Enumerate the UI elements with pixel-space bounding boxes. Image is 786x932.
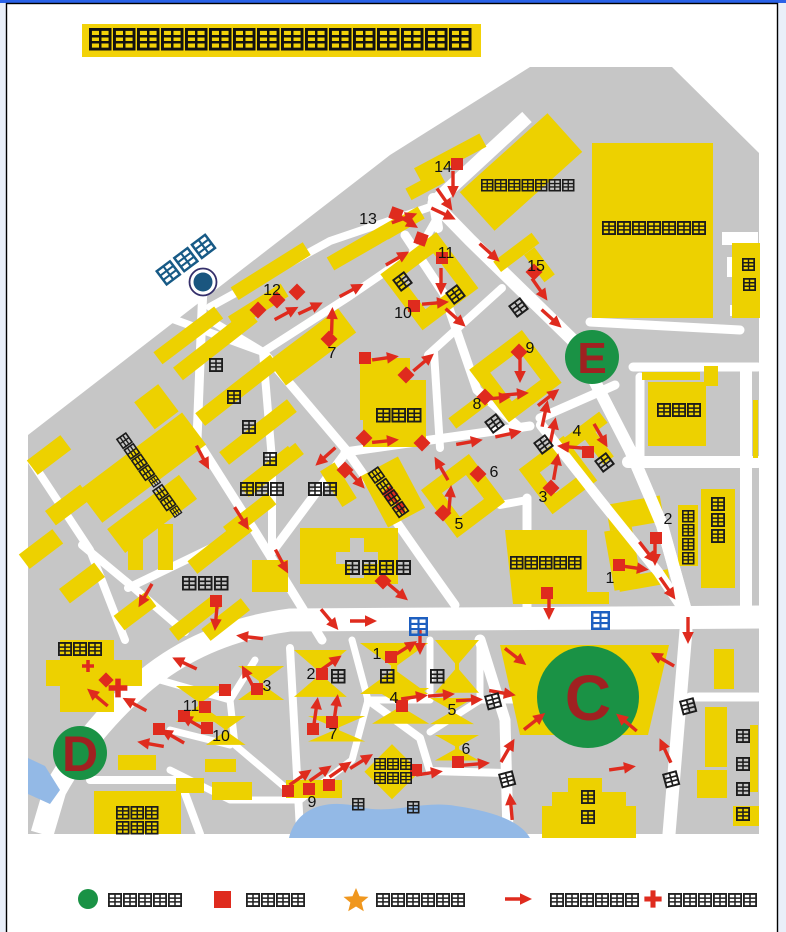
svg-text:6: 6 bbox=[490, 464, 499, 481]
svg-text:13: 13 bbox=[359, 211, 377, 228]
svg-text:3: 3 bbox=[263, 678, 272, 695]
svg-text:D: D bbox=[62, 726, 98, 782]
svg-text:9: 9 bbox=[308, 794, 317, 811]
svg-text:7: 7 bbox=[328, 345, 337, 362]
svg-text:7: 7 bbox=[329, 726, 338, 743]
svg-text:6: 6 bbox=[462, 741, 471, 758]
svg-text:C: C bbox=[565, 662, 611, 734]
svg-text:14: 14 bbox=[434, 159, 452, 176]
svg-text:1: 1 bbox=[373, 646, 382, 663]
svg-text:10: 10 bbox=[212, 728, 230, 745]
svg-text:9: 9 bbox=[526, 340, 535, 357]
svg-text:11: 11 bbox=[438, 245, 455, 262]
svg-text:5: 5 bbox=[455, 516, 464, 533]
svg-text:8: 8 bbox=[473, 396, 482, 413]
svg-text:12: 12 bbox=[263, 282, 281, 299]
svg-text:E: E bbox=[577, 334, 606, 383]
svg-text:4: 4 bbox=[573, 423, 582, 440]
svg-text:4: 4 bbox=[390, 690, 399, 707]
svg-text:15: 15 bbox=[527, 258, 545, 275]
svg-text:2: 2 bbox=[307, 666, 316, 683]
svg-text:5: 5 bbox=[448, 702, 457, 719]
svg-text:2: 2 bbox=[664, 511, 673, 528]
svg-text:1: 1 bbox=[606, 570, 615, 587]
svg-text:10: 10 bbox=[394, 305, 412, 322]
svg-text:11: 11 bbox=[183, 698, 200, 715]
svg-text:3: 3 bbox=[539, 489, 548, 506]
